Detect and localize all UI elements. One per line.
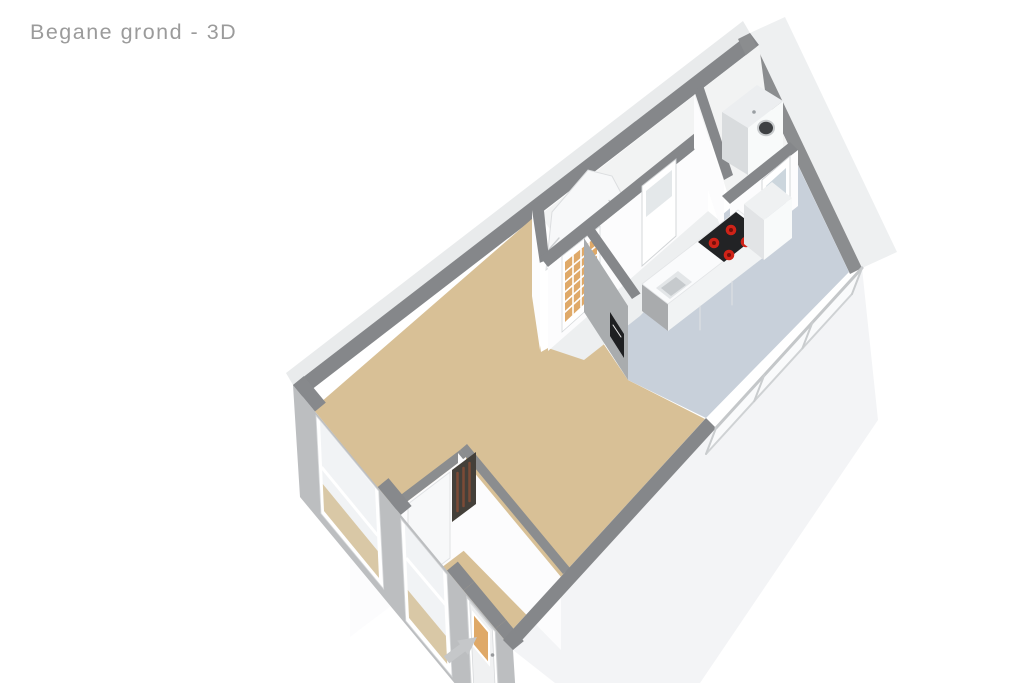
stove-burner-core <box>712 241 716 245</box>
floorplan-page: Begane grond - 3D <box>0 0 1024 683</box>
front-door-handle <box>491 653 495 657</box>
washing-machine-door <box>758 121 774 135</box>
floorplan-3d-scene <box>0 0 1024 683</box>
washing-machine-dial <box>752 110 756 114</box>
stove-burner-core <box>727 253 731 257</box>
stove-burner-core <box>729 228 733 232</box>
